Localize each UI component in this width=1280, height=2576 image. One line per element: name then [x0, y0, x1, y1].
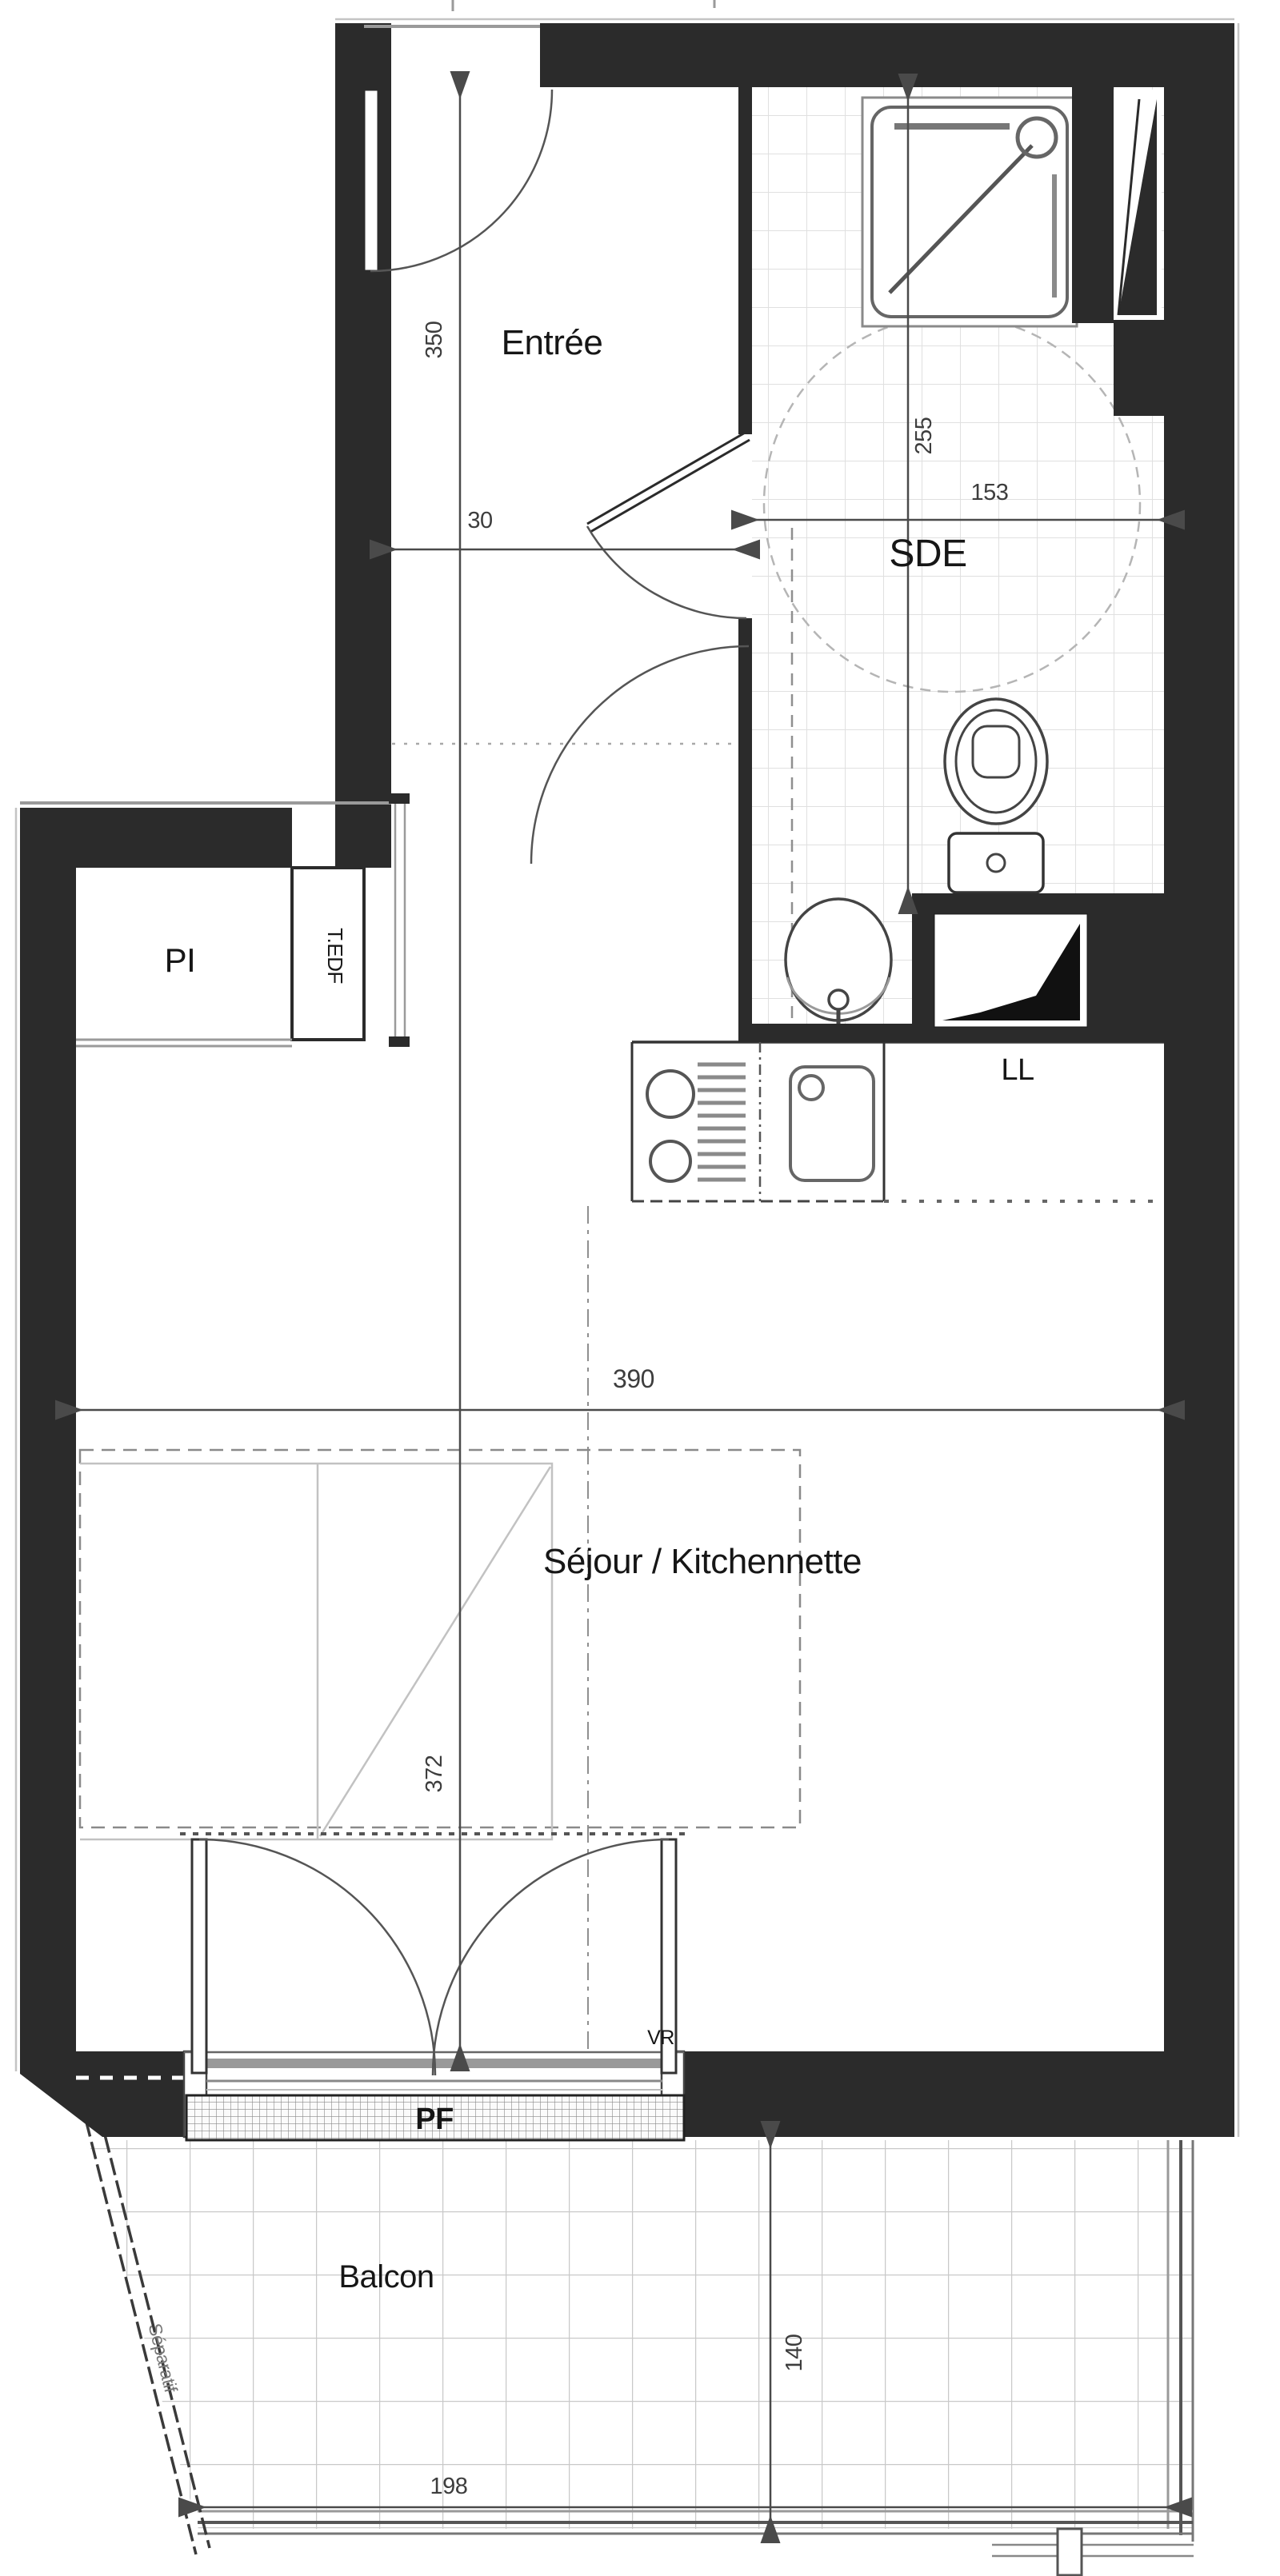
- wall-right: [1164, 23, 1234, 2137]
- wall-duct-left: [912, 913, 934, 1042]
- balcony-post: [1058, 2529, 1082, 2575]
- balcony-tiled-floor: [88, 2140, 1194, 2529]
- wall-sde-lower: [738, 618, 752, 1042]
- wall-left: [20, 868, 76, 2051]
- floor-plan-svg: Entrée SDE PI Séjour / Kitchennette Balc…: [0, 0, 1280, 2576]
- cupboard-foot: [389, 793, 410, 804]
- dim-text-350: 350: [422, 322, 447, 359]
- annotation-vr: VR: [647, 2027, 674, 2049]
- toilet-icon: [945, 699, 1047, 893]
- dim-text-390: 390: [613, 1364, 654, 1393]
- room-label-entree: Entrée: [502, 323, 603, 362]
- wall-sde-bottom: [752, 1024, 912, 1042]
- room-label-balcon: Balcon: [338, 2259, 434, 2294]
- wall-duct-right: [1088, 913, 1164, 1042]
- annotation-ll: LL: [1001, 1053, 1034, 1087]
- balcony-area: [80, 2091, 1194, 2575]
- wall-shower-right: [1072, 87, 1114, 323]
- cupboard-foot: [389, 1036, 410, 1047]
- wall-duct-under: [1114, 320, 1164, 416]
- wall-pi-top: [20, 808, 292, 868]
- wall-duct-top: [912, 893, 1164, 913]
- dim-text-198: 198: [430, 2474, 468, 2499]
- annotation-tedf: T.EDF: [323, 928, 347, 984]
- window-leaf: [192, 1839, 206, 2073]
- wall-top: [540, 23, 1234, 87]
- room-label-sde: SDE: [889, 533, 966, 575]
- room-label-sejour: Séjour / Kitchennette: [543, 1542, 862, 1581]
- dim-text-153: 153: [971, 480, 1009, 505]
- dim-text-140: 140: [782, 2334, 807, 2372]
- floor-plan-page: Entrée SDE PI Séjour / Kitchennette Balc…: [0, 0, 1280, 2576]
- wall-duct-bottom: [912, 1028, 1164, 1042]
- dim-text-372: 372: [422, 1755, 447, 1793]
- room-label-pi: PI: [165, 941, 196, 979]
- wall-bottom-right: [684, 2051, 1234, 2137]
- dim-text-30: 30: [467, 508, 492, 533]
- entry-door-leaf: [364, 90, 378, 271]
- kitchen-sink-icon: [790, 1067, 874, 1180]
- dim-text-255: 255: [911, 417, 937, 455]
- annotation-pf: PF: [415, 2103, 454, 2136]
- wall-sde-upper: [738, 87, 752, 434]
